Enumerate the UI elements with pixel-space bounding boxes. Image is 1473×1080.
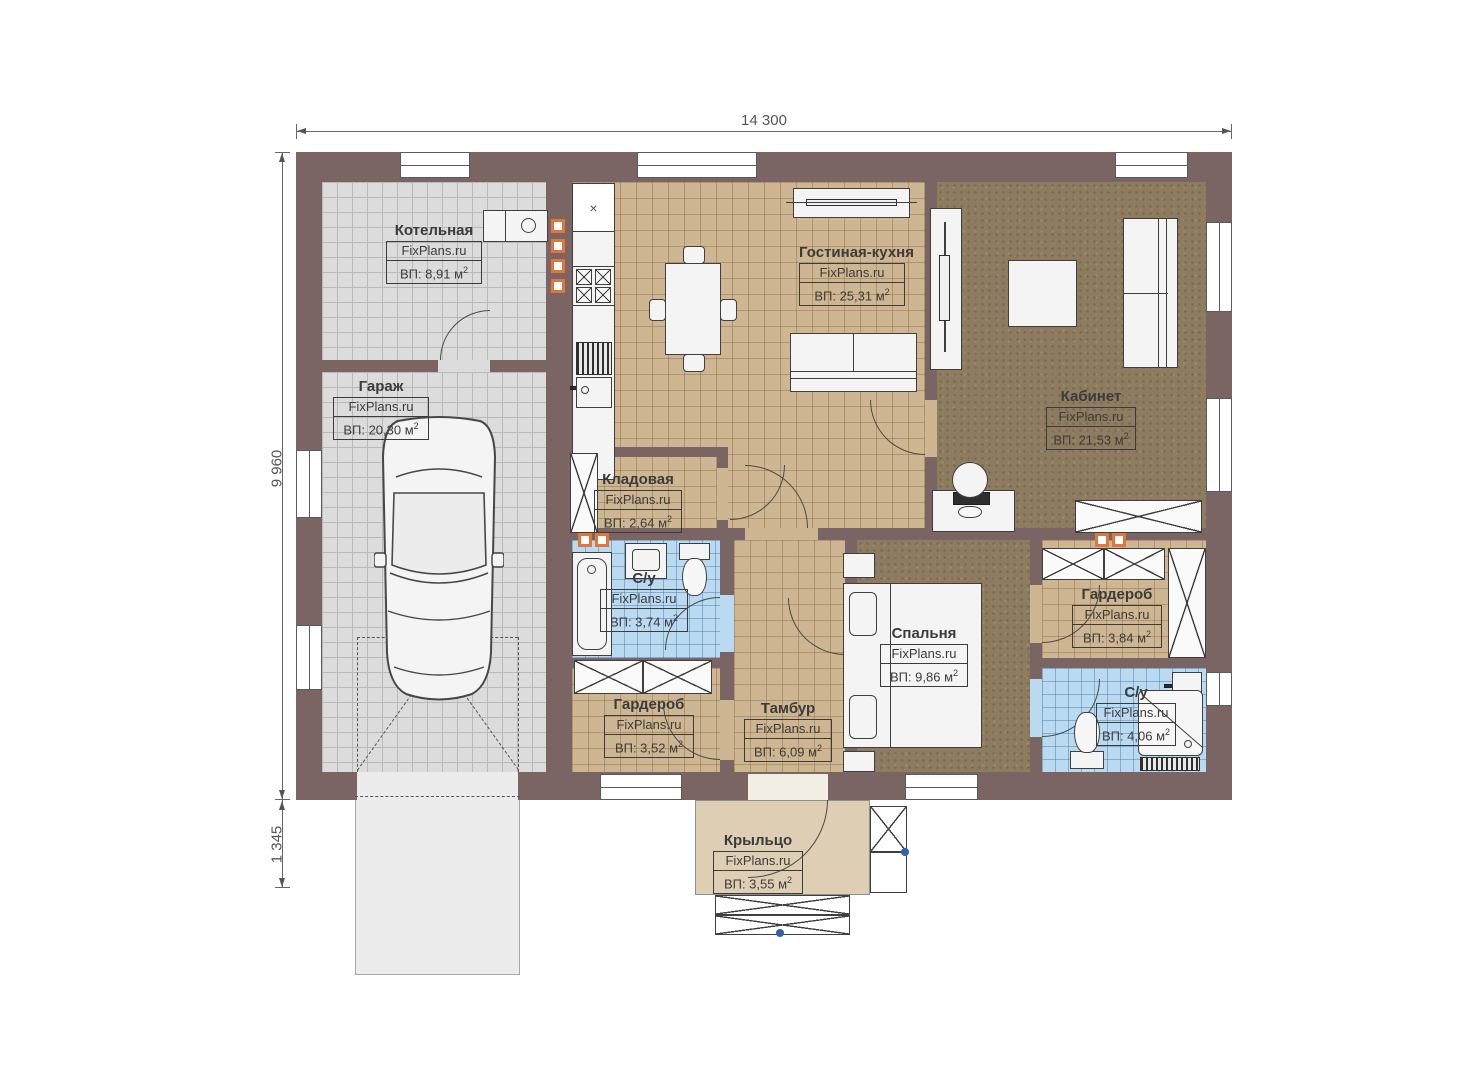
nightstand-top [843, 553, 875, 578]
room-name: Гардероб [604, 696, 694, 713]
room-area: ВП: 21,53 м2 [1046, 426, 1136, 450]
room-area: ВП: 2,64 м2 [594, 509, 682, 533]
room-name: Гараж [333, 378, 429, 395]
vent-square-4 [551, 279, 565, 293]
watermark: FixPlans.ru [880, 644, 968, 664]
room-label-vestibule: Тамбур FixPlans.ru ВП: 6,09 м2 [744, 700, 832, 762]
dining-table [665, 263, 721, 355]
driveway [355, 774, 520, 975]
room-label-bathroom-right: С/у FixPlans.ru ВП: 4,06 м2 [1096, 684, 1176, 746]
boiler-unit-divider [505, 210, 506, 242]
watermark: FixPlans.ru [1072, 605, 1162, 625]
dim-line-top [296, 131, 1232, 132]
bed-pillow-1 [849, 592, 877, 636]
office-door-opening [925, 400, 937, 457]
dim-arrow-left-top [279, 153, 285, 162]
watermark: FixPlans.ru [333, 397, 429, 417]
room-label-bathroom-left: С/у FixPlans.ru ВП: 3,74 м2 [600, 570, 688, 632]
window-office-right-1 [1206, 222, 1232, 312]
room-label-storage: Кладовая FixPlans.ru ВП: 2,64 м2 [594, 471, 682, 533]
sink-left-basin [632, 549, 660, 571]
sofa-living-divider [853, 334, 854, 372]
watermark: FixPlans.ru [1096, 703, 1176, 723]
room-name: Кладовая [594, 471, 682, 488]
dim-text-left: 9 960 [269, 444, 286, 494]
parking-dash-left [357, 637, 358, 772]
dim-tick-top-right [1231, 124, 1232, 139]
room-area: ВП: 9,86 м2 [880, 663, 968, 687]
window-bathroom-right [1206, 672, 1232, 706]
porch-ramp-lower [870, 852, 907, 893]
window-boiler-top [400, 152, 470, 178]
room-area: ВП: 20,30 м2 [333, 416, 429, 440]
sofa-living-backline-2 [791, 378, 916, 379]
watermark: FixPlans.ru [604, 715, 694, 735]
wardrobe-right-door-opening [1030, 585, 1042, 643]
vent-square-2 [551, 239, 565, 253]
room-name: Гардероб [1072, 586, 1162, 603]
vent-square-1 [551, 219, 565, 233]
room-name: Тамбур [744, 700, 832, 717]
room-area: ВП: 3,52 м2 [604, 734, 694, 758]
room-label-wardrobe-right: Гардероб FixPlans.ru ВП: 3,84 м2 [1072, 586, 1162, 648]
room-area: ВП: 6,09 м2 [744, 738, 832, 762]
parking-dash-right [518, 637, 519, 772]
stove-burner-3 [576, 287, 592, 303]
sofa-living-backline-1 [791, 371, 916, 372]
desk-chair-base [958, 506, 982, 518]
vent-square-6 [595, 533, 609, 547]
wardrobe-left-cabinet-2 [643, 660, 712, 694]
garage-gate-dashed-line [355, 796, 520, 797]
wardrobe-right-tall-cabinet [1168, 548, 1206, 658]
nightstand-bottom [843, 751, 875, 772]
dim-tick-left-lower-bottom [275, 887, 290, 888]
room-area: ВП: 3,84 м2 [1072, 624, 1162, 648]
room-name: Гостиная-кухня [799, 244, 905, 261]
vestibule-door-opening [745, 528, 818, 540]
stove-burner-1 [576, 269, 592, 285]
vent-square-3 [551, 259, 565, 273]
fridge: × [572, 183, 615, 232]
watermark: FixPlans.ru [744, 719, 832, 739]
storage-wall-right-lower [717, 520, 728, 528]
bathroom-left-door-opening [720, 595, 734, 652]
watermark: FixPlans.ru [713, 851, 803, 871]
room-area: ВП: 25,31 м2 [799, 282, 905, 306]
sofa-office-divider [1124, 293, 1168, 294]
room-name: Крыльцо [713, 832, 803, 849]
porch-ramp [870, 806, 907, 852]
vent-square-5 [578, 533, 592, 547]
wardrobe-left-door-opening [720, 700, 734, 760]
room-label-office: Кабинет FixPlans.ru ВП: 21,53 м2 [1046, 388, 1136, 450]
kitchen-sink-drain [581, 386, 589, 394]
window-bedroom-bottom [905, 774, 978, 800]
window-office-right-2 [1206, 398, 1232, 492]
dining-chair-left [649, 299, 666, 321]
dining-chair-top [683, 246, 705, 264]
dim-arrow-left-lower-bottom [279, 878, 285, 887]
wardrobe-office [1075, 500, 1202, 533]
sofa-office-backline-1 [1158, 219, 1159, 367]
wardrobe-left-cabinet-1 [574, 660, 643, 694]
watermark: FixPlans.ru [799, 263, 905, 283]
room-name: Спальня [880, 625, 968, 642]
watermark: FixPlans.ru [594, 490, 682, 510]
car [374, 415, 504, 707]
dim-text-left-lower: 1 345 [269, 820, 286, 870]
room-label-garage: Гараж FixPlans.ru ВП: 20,30 м2 [333, 378, 429, 440]
dim-arrow-left-bottom [279, 790, 285, 799]
vent-square-8 [1112, 533, 1126, 547]
room-area: ВП: 8,91 м2 [386, 260, 482, 284]
boiler-unit-dial [521, 218, 536, 233]
dim-arrow-top-right [1222, 128, 1231, 134]
ramp-handle-dot [901, 848, 909, 856]
window-garage-left-2 [296, 625, 322, 690]
room-label-wardrobe-left: Гардероб FixPlans.ru ВП: 3,52 м2 [604, 696, 694, 758]
room-label-living-kitchen: Гостиная-кухня FixPlans.ru ВП: 25,31 м2 [799, 244, 905, 306]
dining-chair-bottom [683, 354, 705, 372]
room-area: ВП: 3,55 м2 [713, 870, 803, 894]
storage-wall-right-upper [717, 447, 728, 468]
steps-handle-dot [776, 929, 784, 937]
dish-rack [576, 342, 612, 375]
boiler-door-opening [438, 360, 490, 372]
tv-living-bracket [786, 202, 917, 203]
fridge-x-symbol: × [589, 200, 597, 216]
coffee-table-office [1008, 260, 1077, 327]
watermark: FixPlans.ru [386, 241, 482, 261]
bathroom-right-door-opening [1030, 679, 1042, 737]
room-area: ВП: 4,06 м2 [1096, 722, 1176, 746]
front-door-opening [748, 774, 828, 800]
bathtub-drain [587, 565, 596, 574]
vent-square-7 [1095, 533, 1109, 547]
sofa-office-backline-2 [1166, 219, 1167, 367]
watermark: FixPlans.ru [600, 589, 688, 609]
porch-steps-step1 [715, 895, 850, 915]
tv-office-panel [939, 255, 950, 321]
stove-burner-2 [595, 269, 611, 285]
wardrobe-right-cabinet-1 [1042, 548, 1104, 580]
toilet-right-tank [1070, 751, 1104, 769]
dining-chair-right [720, 299, 737, 321]
room-name: С/у [1096, 684, 1176, 701]
dim-arrow-left-lower-top [279, 801, 285, 810]
bed-pillow-2 [849, 695, 877, 739]
desk-chair [952, 462, 988, 498]
room-label-bedroom: Спальня FixPlans.ru ВП: 9,86 м2 [880, 625, 968, 687]
window-garage-left-1 [296, 450, 322, 518]
room-name: Кабинет [1046, 388, 1136, 405]
window-office-top [1115, 152, 1188, 178]
bathroom-right-radiator [1140, 757, 1200, 771]
room-label-porch: Крыльцо FixPlans.ru ВП: 3,55 м2 [713, 832, 803, 894]
window-wardrobe-left-bottom [600, 774, 682, 800]
watermark: FixPlans.ru [1046, 407, 1136, 427]
storage-door-opening [717, 468, 728, 520]
shower-drain [1184, 740, 1192, 748]
boiler-unit [483, 210, 548, 242]
wardrobe-right-cabinet-2 [1104, 548, 1165, 580]
floor-plan: × [0, 0, 1473, 1080]
window-kitchen-top [637, 152, 757, 178]
room-label-boiler: Котельная FixPlans.ru ВП: 8,91 м2 [386, 222, 482, 284]
room-name: Котельная [386, 222, 482, 239]
stove-burner-4 [595, 287, 611, 303]
room-name: С/у [600, 570, 688, 587]
dim-text-top: 14 300 [714, 112, 814, 129]
room-area: ВП: 3,74 м2 [600, 608, 688, 632]
dim-arrow-top-left [297, 128, 306, 134]
